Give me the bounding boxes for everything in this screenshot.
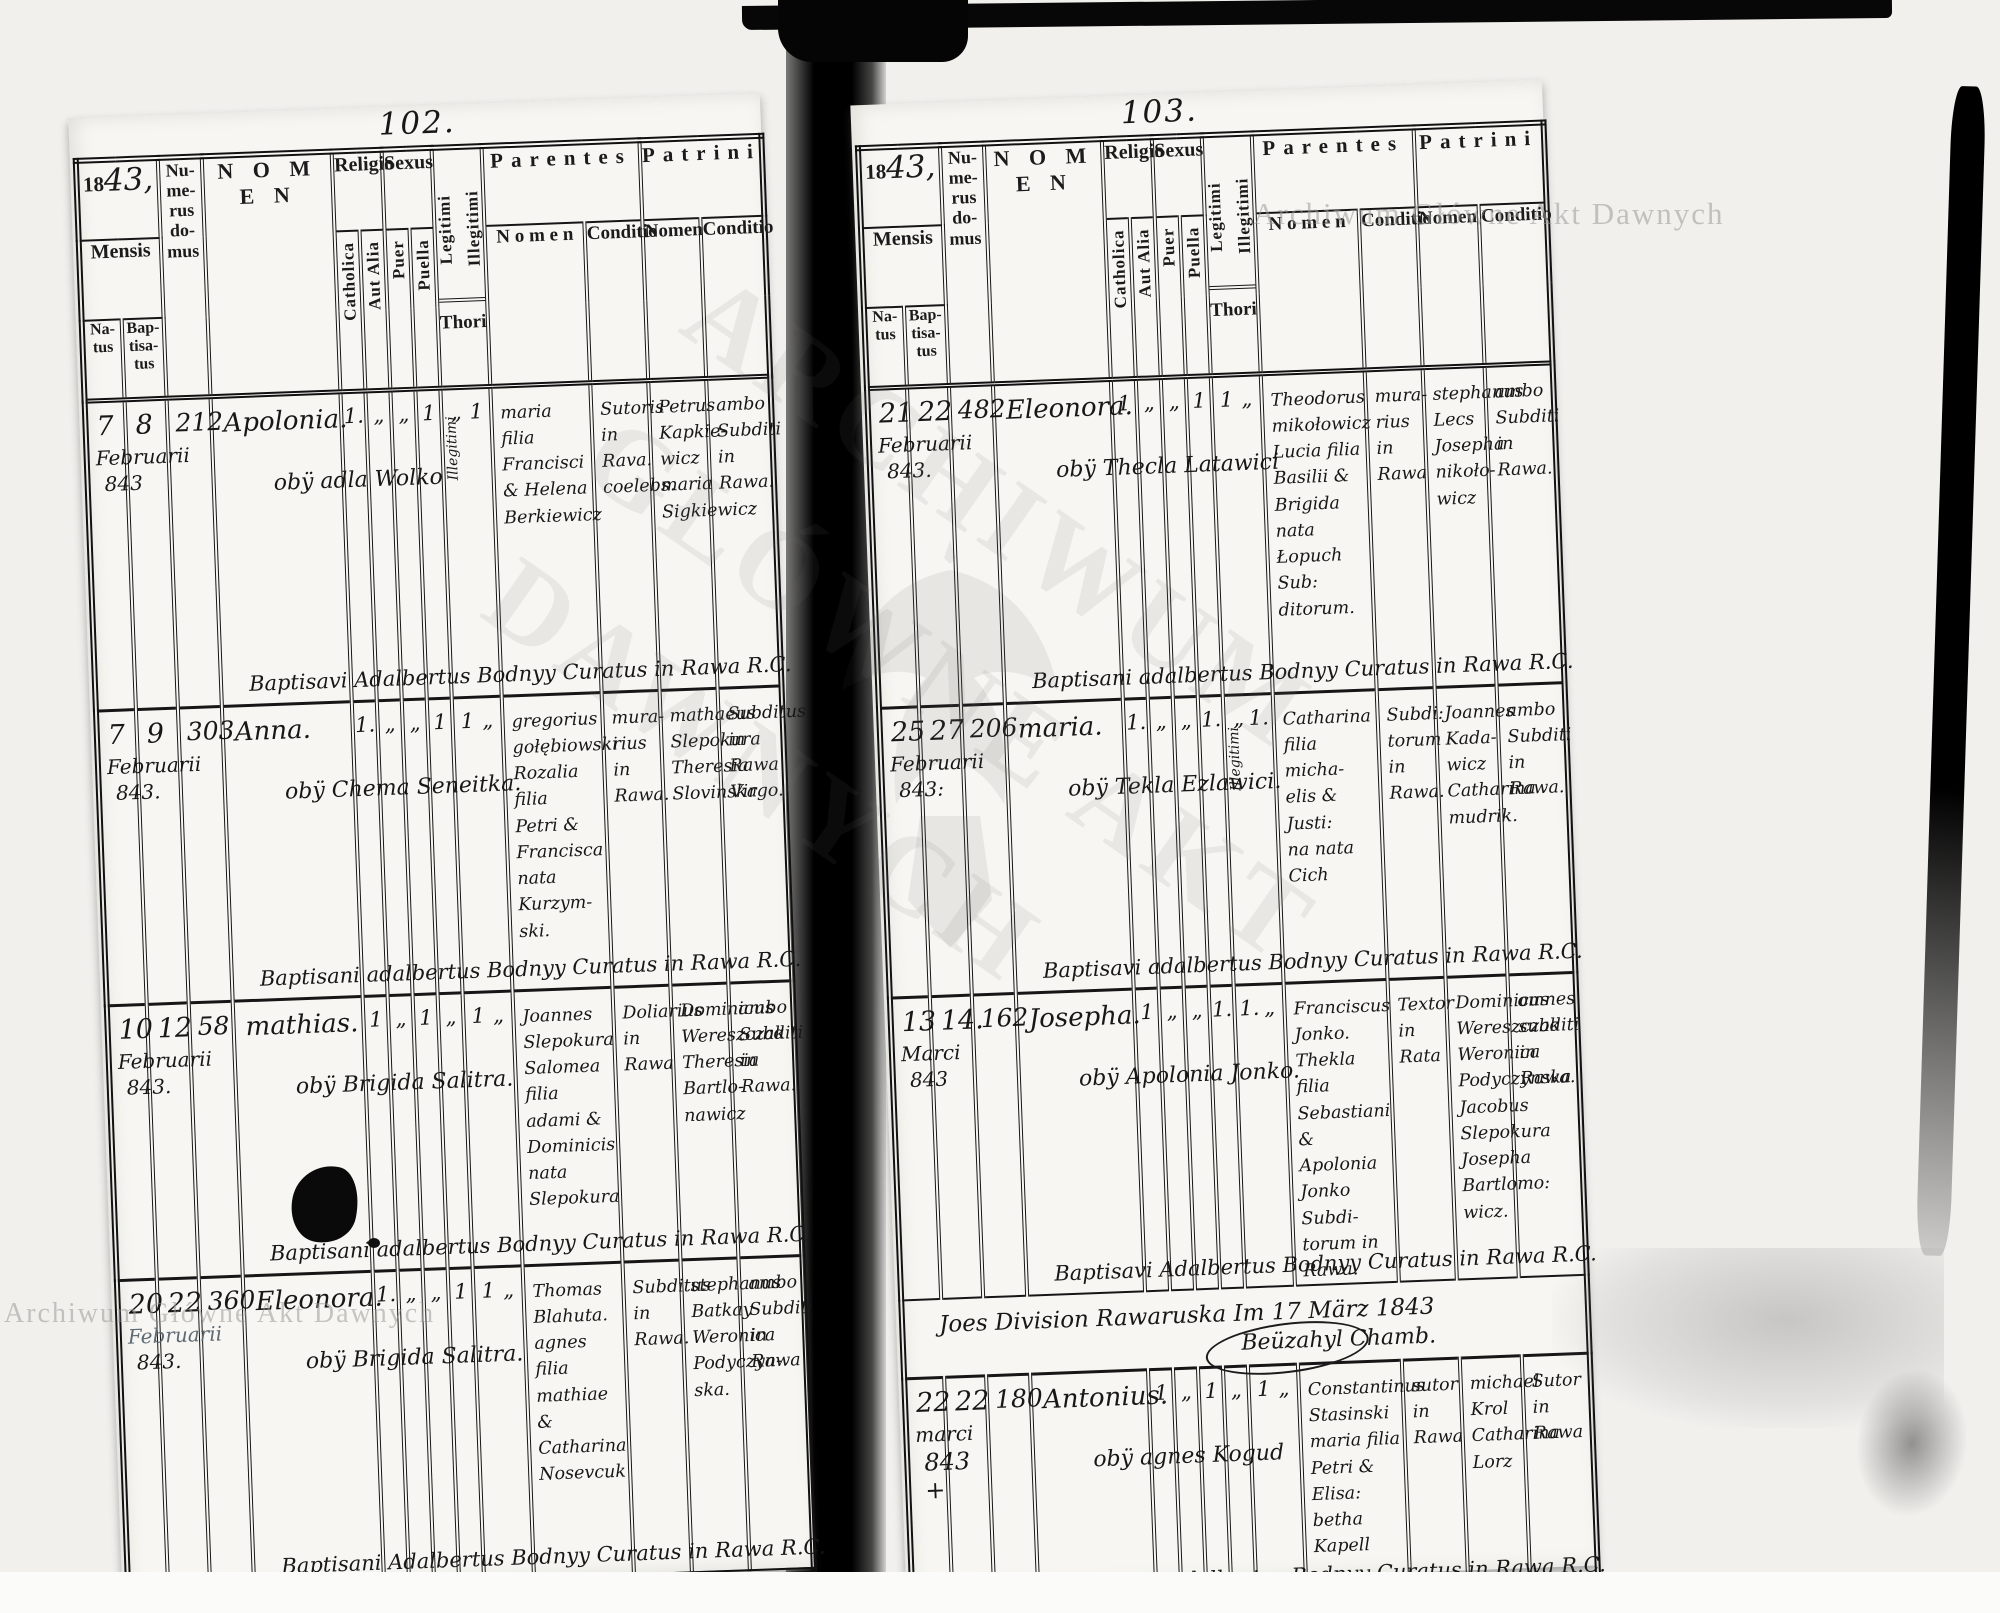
book-right-edge xyxy=(1916,86,1987,1256)
birth-month: Februarii xyxy=(117,1048,147,1073)
header-puella: Puella xyxy=(412,239,434,291)
cell-patrini-conditio: ambo Subditi in Rawa. xyxy=(1485,362,1565,684)
mark-catholica: 1. xyxy=(354,702,375,737)
header-legitimi: Legitimi xyxy=(433,160,458,299)
header-year: 1843, xyxy=(858,145,943,228)
header-aut-alia: Aut Alia xyxy=(1133,228,1156,298)
archive-watermark-top: Archiwum Główne Akt Dawnych xyxy=(1253,196,1725,232)
mark-legitimi: 1 xyxy=(467,993,488,1028)
name-note: obÿ agnes Kogud xyxy=(1093,1445,1150,1472)
patrini-nomen: michael Krol Catharina Lorz xyxy=(1469,1369,1524,1476)
house-number: 58 xyxy=(197,1010,232,1040)
natus-day: 13 xyxy=(901,1006,929,1038)
mark-puer: „ xyxy=(409,700,421,734)
birth-year: 843. xyxy=(126,1074,148,1099)
birth-year: 843. xyxy=(136,1349,158,1374)
child-name: Antonius. xyxy=(1042,1381,1147,1415)
mark-illegitimi: 1 xyxy=(465,389,486,424)
baptisatus-day: 9 xyxy=(146,717,177,749)
header-legitimi-wrap: Legitimi Illegitimi xyxy=(1204,137,1256,291)
header-patrini: Patrini xyxy=(1414,123,1547,208)
cell-natus: 13 Marci 843 xyxy=(890,996,941,1301)
name-note: obÿ Brigida Salitra. xyxy=(305,1346,374,1373)
cell-patrini-nomen: Dominicus Wereszczak Weronica Podyczynsk… xyxy=(1445,974,1518,1279)
birth-year: 843 + xyxy=(924,1448,947,1505)
name-note: obÿ adla Wolko xyxy=(273,468,342,495)
mark-puella: 1 xyxy=(433,699,448,733)
parentes-conditio: mura- rius in Rawa xyxy=(1374,382,1425,489)
natus-day: 22 xyxy=(915,1387,943,1419)
cell-natus: 7 Februarii 843. xyxy=(96,709,147,1005)
mark-aut-alia: „ xyxy=(1180,1369,1192,1403)
header-baptisatus: Bap- tisa- tus xyxy=(122,318,167,399)
header-year: 1843, xyxy=(76,158,161,241)
mark-illegitimi: „ xyxy=(498,1267,519,1302)
parentes-conditio: Subditus in Rawa. xyxy=(632,1273,682,1353)
mark-illegitimi: „ xyxy=(477,697,498,732)
cell-name: Apolonia. obÿ adla Wolko Baptisavi Adalb… xyxy=(210,391,351,706)
baptisatus-day: 12 xyxy=(157,1012,188,1044)
cell-patrini-conditio: ambo Subditi in Rawa. xyxy=(1497,682,1576,974)
birth-year: 843 xyxy=(909,1067,931,1092)
patrini-nomen: Dominicus Wereszczak Weronica Podyczynsk… xyxy=(1455,988,1515,1226)
child-name: Apolonia. xyxy=(223,404,340,438)
header-year-script: 43, xyxy=(103,161,154,199)
birth-year: 843 xyxy=(104,471,126,496)
header-thori-group: Legitimi Illegitimi Thori xyxy=(432,146,491,388)
birth-month: marci xyxy=(915,1422,945,1447)
header-year-printed: 18 xyxy=(83,172,105,197)
birth-month: Februarii xyxy=(95,445,125,470)
header-catholica: Catholica xyxy=(337,242,360,322)
parentes-nomen: Theodorus mikołowicz Lucia filia Basilii… xyxy=(1270,384,1372,624)
header-thori: Thori xyxy=(1210,288,1257,322)
cell-natus: 7 Februarii 843 xyxy=(85,399,136,710)
thori-note: Illegitimi xyxy=(443,416,461,481)
parentes-conditio: Doliarius in Rawa xyxy=(622,998,672,1078)
cell-patrini-nomen: stephanus Batkay Weronica Podyczyn- ska. xyxy=(680,1257,750,1574)
mark-puer: 1 xyxy=(418,995,433,1029)
ink-smear xyxy=(1846,1361,1978,1525)
parentes-nomen: Joannes Slepokura Salomea filia adami & … xyxy=(522,1000,619,1213)
header-patrini: Patrini xyxy=(639,136,764,220)
mark-aut-alia: „ xyxy=(373,392,385,426)
header-parentes: Parentes xyxy=(482,140,643,226)
division-signature: Beüzahyl Chamb. xyxy=(1241,1324,1437,1356)
patrini-conditio: ambo Subditi in Rawa. xyxy=(738,994,794,1101)
cell-parentes-conditio: Doliarius in Rawa xyxy=(612,985,680,1262)
header-year-script: 43, xyxy=(885,148,936,186)
patrini-conditio: ambo Subditi in Rawa. xyxy=(1506,696,1566,803)
birth-month: Februarii xyxy=(107,754,137,779)
patrini-conditio: ambo Subditi in Rawa. xyxy=(1494,377,1554,484)
patrini-nomen: stephanus Lecs Josepha nikoło- wicz xyxy=(1432,379,1488,512)
house-number: 212 xyxy=(175,407,210,437)
parentes-nomen: Thomas Blahuta. agnes filia mathiae & Ca… xyxy=(532,1275,629,1488)
header-aut-alia: Aut Alia xyxy=(362,241,385,311)
mark-aut-alia: „ xyxy=(384,701,396,735)
patrini-nomen: Joannes Kada- wicz Catharina mudrik. xyxy=(1444,698,1500,831)
mark-puella: 1 xyxy=(1192,378,1207,412)
cell-patrini-nomen: Dominicus Wereszczak Theresia Bartlo- na… xyxy=(670,983,738,1260)
natus-day: 7 xyxy=(96,410,124,442)
parentes-nomen: Constantinus Stasinski maria filia Petri… xyxy=(1307,1374,1407,1561)
child-name: mathias. xyxy=(245,1008,362,1042)
header-year-printed: 18 xyxy=(865,159,887,184)
patrini-conditio: ambo Subditi in Rawa xyxy=(748,1269,804,1376)
header-puella: Puella xyxy=(1183,226,1205,278)
child-name: Eleonora. xyxy=(1005,391,1110,425)
mark-legitimi: 1 xyxy=(1253,1366,1274,1401)
ink-dot xyxy=(368,1238,380,1248)
header-parentes-nomen: N o m e n xyxy=(484,222,590,386)
cell-parentes-nomen: Franciscus Jonko. Thekla filia Sebastian… xyxy=(1284,979,1399,1286)
header-illegitimi: Illegitimi xyxy=(461,159,486,298)
mark-catholica: 1 xyxy=(368,997,383,1031)
mark-puer: „ xyxy=(1168,379,1180,413)
mark-legitimi: 1 xyxy=(477,1268,498,1303)
parentes-conditio: sutor in Rawa xyxy=(1411,1371,1461,1451)
header-religio: Religio xyxy=(1102,137,1155,219)
house-number: 303 xyxy=(186,716,221,746)
header-natus: Na- tus xyxy=(82,319,125,400)
table-row: 10 Februarii 843. 12 58 mathias. obÿ Bri… xyxy=(107,980,803,1280)
birth-month: Marci xyxy=(901,1041,931,1066)
mark-aut-alia: „ xyxy=(1143,380,1155,414)
house-number: 180 xyxy=(994,1383,1029,1413)
header-parentes-conditio: Conditio xyxy=(584,220,648,382)
name-note: obÿ Brigida Salitra. xyxy=(295,1071,364,1098)
birth-year: 843. xyxy=(116,780,138,805)
archive-eagle-watermark xyxy=(800,540,1100,960)
archive-watermark-bottom: Archiwum Główne Akt Dawnych xyxy=(4,1298,435,1330)
cell-parentes-nomen: Joannes Slepokura Salomea filia adami & … xyxy=(512,987,622,1265)
mark-illegitimi: „ xyxy=(1273,1366,1294,1401)
natus-day: 7 xyxy=(107,719,135,751)
cell-thori: 1„ xyxy=(463,990,523,1267)
header-legitimi: Legitimi xyxy=(1203,148,1228,287)
header-nomen: N O M E N xyxy=(984,139,1111,383)
header-parentes-nomen: N o m e n xyxy=(1255,210,1365,374)
mark-puer: 1 xyxy=(1204,1368,1219,1402)
parentes-nomen: Franciscus Jonko. Thekla filia Sebastian… xyxy=(1293,993,1397,1285)
header-sexus: Sexus xyxy=(1152,135,1205,217)
scan-bottom-margin xyxy=(0,1572,2000,1613)
cell-name: Anna. obÿ Chema Seneitka. Baptisani adal… xyxy=(222,701,363,1001)
mark-illegitimi: „ xyxy=(1236,376,1257,411)
mark-puella: „ xyxy=(445,994,457,1028)
natus-day: 10 xyxy=(118,1013,146,1045)
child-name: Anna. xyxy=(234,713,351,747)
header-puer: Puer xyxy=(387,240,408,280)
header-mensis: Mensis xyxy=(861,225,946,308)
mark-legitimi: 1 xyxy=(457,698,478,733)
cell-parentes-nomen: Thomas Blahuta. agnes filia mathiae & Ca… xyxy=(523,1262,634,1580)
header-mensis: Mensis xyxy=(79,238,164,321)
mark-illegitimi: „ xyxy=(488,992,509,1027)
name-note: obÿ Chema Seneitka. xyxy=(285,777,354,804)
patrini-nomen: Dominicus Wereszczak Theresia Bartlo- na… xyxy=(680,996,732,1129)
mark-puer: „ xyxy=(398,391,410,425)
header-religio: Religio xyxy=(332,150,385,232)
header-nomen: N O M E N xyxy=(202,152,341,397)
header-puer: Puer xyxy=(1158,227,1179,267)
header-catholica: Catholica xyxy=(1108,229,1131,309)
header-thori-group: Legitimi Illegitimi Thori xyxy=(1202,133,1261,375)
mark-aut-alia: „ xyxy=(395,996,407,1030)
scan-top-border-thick xyxy=(778,0,968,62)
baptisatus-day: 8 xyxy=(135,408,166,440)
patrini-conditio: omnes subditi in Rawa. xyxy=(1517,986,1577,1093)
mark-puella: 1 xyxy=(421,390,436,424)
header-legitimi-wrap: Legitimi Illegitimi xyxy=(434,149,486,303)
mark-puella: 1 xyxy=(453,1269,468,1303)
register-scan: 102. 1843, Nu- me- rus do- mus N O M E N… xyxy=(0,0,2000,1613)
cell-patrini-conditio: ambo Subditi in Rawa xyxy=(738,1255,813,1572)
header-sexus: Sexus xyxy=(382,148,435,230)
parentes-conditio: Textor in Rata xyxy=(1397,990,1447,1070)
baptisatus-day: 22 xyxy=(954,1385,985,1417)
header-thori: Thori xyxy=(439,301,486,335)
patrini-nomen: stephanus Batkay Weronica Podyczyn- ska. xyxy=(690,1271,742,1404)
mark-legitimi: 1 xyxy=(1216,377,1237,412)
